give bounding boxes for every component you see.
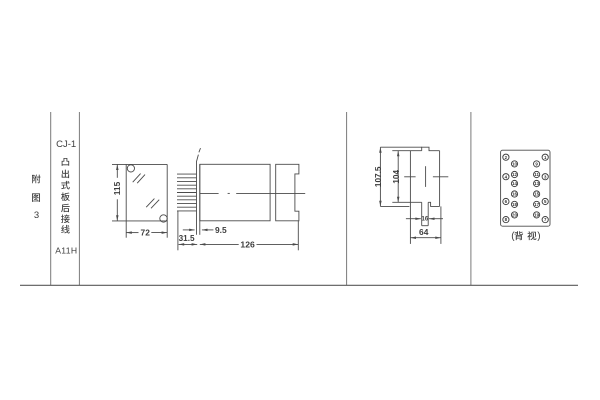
- svg-text:1: 1: [544, 155, 547, 160]
- svg-text:11: 11: [534, 172, 539, 177]
- svg-text:): ): [537, 231, 540, 242]
- svg-text:20: 20: [512, 212, 517, 217]
- svg-text:3: 3: [544, 174, 547, 179]
- svg-text:107.5: 107.5: [374, 166, 383, 187]
- svg-text:17: 17: [534, 202, 539, 207]
- svg-text:7: 7: [544, 217, 547, 222]
- svg-text:64: 64: [419, 227, 429, 237]
- svg-text:3: 3: [34, 210, 39, 221]
- svg-text:13: 13: [534, 181, 539, 186]
- svg-text:8: 8: [505, 217, 508, 222]
- svg-text:104: 104: [392, 170, 401, 184]
- svg-text:6: 6: [505, 199, 508, 204]
- svg-text:19: 19: [534, 212, 539, 217]
- svg-text:A11H: A11H: [55, 245, 77, 255]
- svg-text:2: 2: [505, 155, 508, 160]
- svg-text:18: 18: [512, 202, 517, 207]
- svg-text:12: 12: [512, 172, 517, 177]
- svg-text:5: 5: [544, 199, 547, 204]
- svg-text:9: 9: [535, 161, 538, 166]
- svg-text:CJ-1: CJ-1: [56, 139, 76, 150]
- svg-text:72: 72: [141, 227, 151, 237]
- svg-text:4: 4: [505, 174, 508, 179]
- svg-text:126: 126: [240, 239, 255, 249]
- svg-text:16: 16: [422, 216, 429, 222]
- svg-text:9.5: 9.5: [215, 225, 227, 235]
- svg-text:31.5: 31.5: [179, 234, 195, 243]
- svg-text:10: 10: [512, 161, 517, 166]
- svg-text:15: 15: [534, 192, 539, 197]
- svg-text:16: 16: [512, 192, 517, 197]
- svg-text:115: 115: [112, 181, 122, 195]
- svg-text:14: 14: [512, 181, 517, 186]
- svg-text:(: (: [511, 231, 515, 242]
